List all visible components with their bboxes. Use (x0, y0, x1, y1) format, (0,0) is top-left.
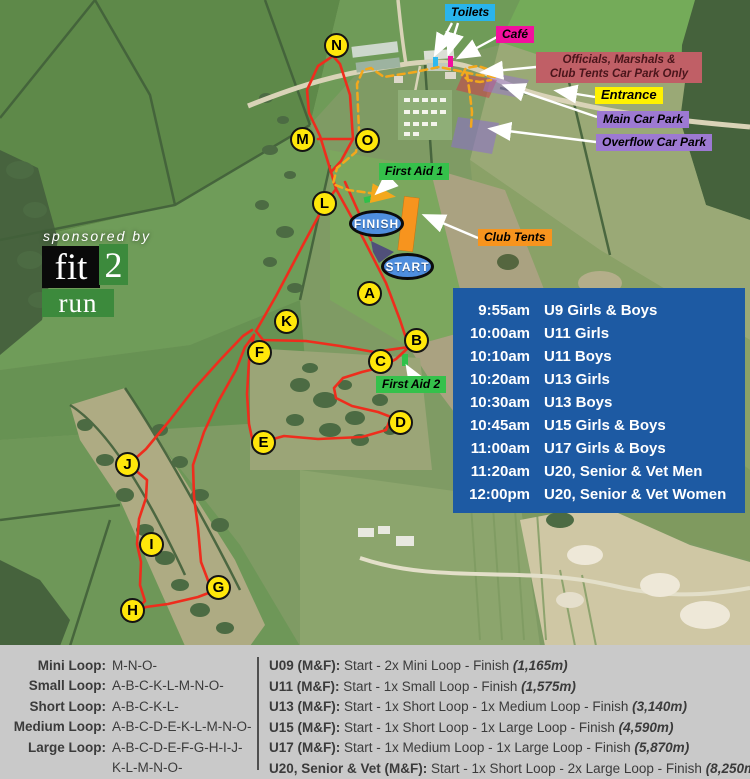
toilets-label: Toilets (445, 4, 495, 21)
loop-row: Medium Loop: A-B-C-D-E-K-L-M-N-O- (2, 717, 254, 737)
loop-row: K-L-M-N-O- (2, 758, 254, 778)
race-route: Start - 1x Short Loop - 1x Large Loop - … (344, 720, 619, 735)
race-row: U13 (M&F): Start - 1x Short Loop - 1x Me… (269, 697, 747, 718)
course-marker-e: E (251, 430, 276, 455)
loop-name: Mini Loop: (2, 656, 106, 676)
overflow-car-park-label: Overflow Car Park (596, 134, 712, 151)
race-route: Start - 1x Short Loop - 1x Medium Loop -… (344, 699, 632, 714)
first-aid-1-label: First Aid 1 (379, 163, 449, 180)
race-row: U17 (M&F): Start - 1x Medium Loop - 1x L… (269, 738, 747, 759)
schedule-row: 10:00am U11 Girls (453, 322, 745, 345)
race-event: U20, Senior & Vet Men (544, 463, 702, 480)
race-row: U20, Senior & Vet (M&F): Start - 1x Shor… (269, 759, 747, 779)
main-car-park-label: Main Car Park (597, 111, 689, 128)
first-aid-2-label: First Aid 2 (376, 376, 446, 393)
schedule-row: 11:00am U17 Girls & Boys (453, 437, 745, 460)
race-event: U13 Girls (544, 371, 610, 388)
course-marker-g: G (206, 575, 231, 600)
race-distance: (8,250m) (706, 761, 750, 776)
course-marker-i: I (139, 532, 164, 557)
course-marker-f: F (247, 340, 272, 365)
loop-name: Short Loop: (2, 697, 106, 717)
loop-row: Small Loop: A-B-C-K-L-M-N-O- (2, 676, 254, 696)
race-name: U15 (M&F): (269, 720, 340, 735)
sponsor-logo-2: 2 (99, 244, 128, 285)
caravan-park (398, 90, 452, 140)
race-time: 11:00am (453, 440, 530, 457)
course-marker-j: J (115, 452, 140, 477)
sponsor-logo-run: run (42, 289, 114, 317)
schedule-row: 9:55am U9 Girls & Boys (453, 299, 745, 322)
loop-sequence: A-B-C-D-E-K-L-M-N-O- (112, 717, 251, 737)
race-route: Start - 1x Short Loop - 2x Large Loop - … (431, 761, 706, 776)
course-marker-d: D (388, 410, 413, 435)
club-tents-label: Club Tents (478, 229, 552, 246)
race-route: Start - 1x Medium Loop - 1x Large Loop -… (344, 740, 634, 755)
loop-sequence: A-B-C-K-L-M-N-O- (112, 676, 224, 696)
schedule-row: 11:20am U20, Senior & Vet Men (453, 460, 745, 483)
officials-label-line1: Officials, Marshals & (540, 54, 698, 68)
race-route: Start - 1x Small Loop - Finish (343, 679, 521, 694)
cafe-marker (448, 56, 453, 67)
course-marker-c: C (368, 349, 393, 374)
race-distance: (1,575m) (521, 679, 576, 694)
loop-sequence: A-B-C-K-L- (112, 697, 179, 717)
loop-name: Small Loop: (2, 676, 106, 696)
legend-panel: Mini Loop: M-N-O- Small Loop: A-B-C-K-L-… (0, 645, 750, 779)
race-distance: (5,870m) (634, 740, 689, 755)
schedule-row: 12:00pm U20, Senior & Vet Women (453, 483, 745, 506)
officials-car-park-label: Officials, Marshals & Club Tents Car Par… (536, 52, 702, 83)
loop-row: Short Loop: A-B-C-K-L- (2, 697, 254, 717)
course-marker-n: N (324, 33, 349, 58)
entrance-label: Entrance (595, 87, 663, 104)
race-time: 11:20am (453, 463, 530, 480)
loop-name: Large Loop: (2, 738, 106, 758)
schedule-row: 10:30am U13 Boys (453, 391, 745, 414)
race-name: U09 (M&F): (269, 658, 340, 673)
race-event: U15 Girls & Boys (544, 417, 666, 434)
course-marker-l: L (312, 191, 337, 216)
race-route: Start - 2x Mini Loop - Finish (344, 658, 513, 673)
race-name: U17 (M&F): (269, 740, 340, 755)
cafe-label: Café (496, 26, 534, 43)
race-row: U09 (M&F): Start - 2x Mini Loop - Finish… (269, 656, 747, 677)
race-distance: (3,140m) (632, 699, 687, 714)
race-distance: (4,590m) (619, 720, 674, 735)
race-event: U13 Boys (544, 394, 612, 411)
loop-row: Large Loop: A-B-C-D-E-F-G-H-I-J- (2, 738, 254, 758)
race-row: U15 (M&F): Start - 1x Short Loop - 1x La… (269, 718, 747, 739)
race-schedule: 9:55am U9 Girls & Boys 10:00am U11 Girls… (453, 288, 745, 513)
race-event: U20, Senior & Vet Women (544, 486, 726, 503)
race-event: U17 Girls & Boys (544, 440, 666, 457)
start-marker: START (381, 253, 434, 280)
race-time: 10:20am (453, 371, 530, 388)
race-row: U11 (M&F): Start - 1x Small Loop - Finis… (269, 677, 747, 698)
race-time: 10:30am (453, 394, 530, 411)
race-event: U11 Boys (544, 348, 612, 365)
race-time: 10:45am (453, 417, 530, 434)
race-name: U20, Senior & Vet (M&F): (269, 761, 427, 776)
race-event: U9 Girls & Boys (544, 302, 657, 319)
loop-sequence-wrap: K-L-M-N-O- (112, 758, 183, 778)
course-marker-a: A (357, 281, 382, 306)
race-time: 10:00am (453, 325, 530, 342)
course-marker-o: O (355, 128, 380, 153)
course-map-flyer: Toilets Café Officials, Marshals & Club … (0, 0, 750, 779)
loop-definitions: Mini Loop: M-N-O- Small Loop: A-B-C-K-L-… (2, 656, 254, 778)
course-marker-k: K (274, 309, 299, 334)
race-event: U11 Girls (544, 325, 609, 342)
loop-sequence: M-N-O- (112, 656, 157, 676)
loop-sequence: A-B-C-D-E-F-G-H-I-J- (112, 738, 242, 758)
loop-name-spacer (2, 758, 106, 778)
schedule-row: 10:20am U13 Girls (453, 368, 745, 391)
race-name: U13 (M&F): (269, 699, 340, 714)
schedule-row: 10:10am U11 Boys (453, 345, 745, 368)
legend-divider (257, 657, 259, 770)
course-marker-h: H (120, 598, 145, 623)
race-time: 10:10am (453, 348, 530, 365)
race-time: 12:00pm (453, 486, 530, 503)
schedule-row: 10:45am U15 Girls & Boys (453, 414, 745, 437)
loop-row: Mini Loop: M-N-O- (2, 656, 254, 676)
officials-label-line2: Club Tents Car Park Only (540, 68, 698, 82)
race-definitions: U09 (M&F): Start - 2x Mini Loop - Finish… (269, 656, 747, 779)
sponsor-tagline: sponsored by (43, 228, 151, 244)
course-marker-m: M (290, 127, 315, 152)
loop-name: Medium Loop: (2, 717, 106, 737)
first-aid-2-marker (402, 354, 408, 366)
race-name: U11 (M&F): (269, 679, 340, 694)
sponsor-logo-fit: fit (42, 246, 100, 288)
race-time: 9:55am (453, 302, 530, 319)
course-marker-b: B (404, 328, 429, 353)
finish-marker: FINISH (349, 210, 404, 237)
race-distance: (1,165m) (513, 658, 568, 673)
